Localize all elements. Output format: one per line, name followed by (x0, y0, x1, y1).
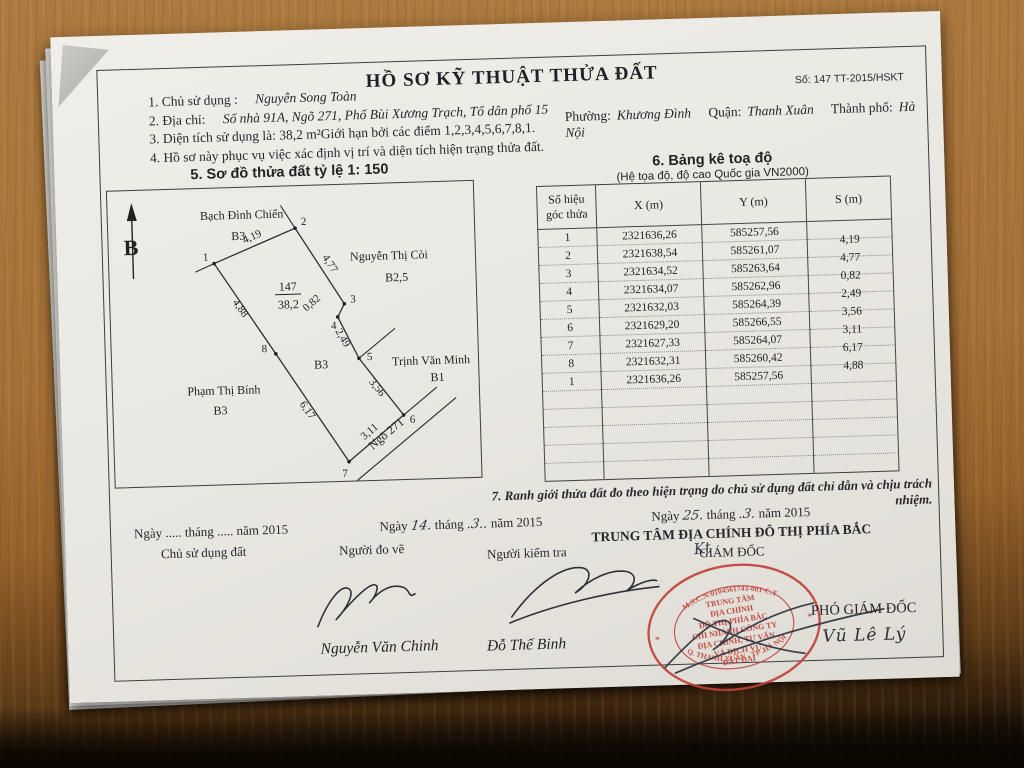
edge-length: 6,17 (297, 399, 318, 422)
owner-role-label: Chủ sử dụng đất (123, 543, 283, 564)
surveyor-role-label: Người đo vẽ (301, 540, 441, 560)
coordinates-table: Số hiệugóc thửa X (m) Y (m) S (m) 123216… (536, 175, 900, 481)
neighbor-grade: B2,5 (385, 270, 408, 285)
parcel-grade: B3 (314, 357, 328, 371)
neighbor-grade: B3 (213, 403, 227, 417)
north-label: B (123, 235, 139, 260)
point-label: 5 (367, 351, 373, 363)
document-page: HỒ SƠ KỸ THUẬT THỬA ĐẤT Số: 147 TT-2015/… (50, 11, 959, 703)
photo-of-document: { "header": { "title": "HỒ SƠ KỸ THUẬT T… (0, 0, 1024, 768)
surveyor-name: Nguyễn Văn Chinh (304, 637, 454, 659)
point-label: 7 (342, 468, 348, 480)
point-label: 8 (261, 343, 267, 355)
district-value: Thanh Xuân (747, 102, 814, 119)
admin-area-line: Phường:Khương Đình Quận:Thanh Xuân Thành… (565, 98, 928, 141)
point-label: 1 (203, 252, 209, 264)
neighbor-grade: B3 (231, 229, 245, 243)
neighbor-grade: B1 (430, 370, 444, 384)
parcel-sketch: B 1 2 3 4 5 6 7 8 4,19 4,77 0,82 2,49 3,… (106, 180, 483, 489)
document-number: Số: 147 TT-2015/HSKT (795, 71, 904, 86)
edge-length: 4,77 (319, 252, 340, 275)
col-header-s: S (m) (805, 176, 891, 222)
point-label: 6 (410, 414, 416, 426)
document-frame: HỒ SƠ KỸ THUẬT THỬA ĐẤT Số: 147 TT-2015/… (96, 45, 944, 681)
point-label: 3 (350, 293, 356, 305)
neighbor-name: Phạm Thị Bính (187, 382, 261, 398)
parcel-number: 147 (279, 279, 297, 294)
handwritten-month: .3.. (466, 517, 489, 533)
surveyor-date-line: Ngày 14. tháng .3.. năm 2015 (356, 513, 566, 535)
owner-info-block: 1. Chủ sử dụng : Nguyễn Song Toàn 2. Địa… (148, 82, 549, 168)
col-header-corner: Số hiệugóc thửa (536, 185, 596, 230)
col-header-x: X (m) (595, 182, 701, 228)
inspector-name: Đỗ Thế Binh (466, 635, 586, 657)
owner-date-line: Ngày ..... tháng ..... năm 2015 (116, 521, 306, 543)
neighbor-name: Nguyễn Thị Còi (350, 247, 429, 263)
org-name: TRUNG TÂM ĐỊA CHÍNH ĐÔ THỊ PHÍA BẮC (579, 521, 883, 546)
signature-surveyor (310, 574, 424, 635)
handwritten-day: 14. (410, 518, 433, 534)
parcel-area: 38,2 (278, 297, 299, 312)
stamp-star: * (654, 635, 661, 647)
handwritten-month: .3. (738, 507, 757, 523)
edge-length: 4,88 (230, 297, 251, 320)
owner-name: Nguyễn Song Toàn (255, 88, 357, 106)
neighbor-name: Trịnh Văn Minh (392, 352, 470, 368)
edge-length: 2,49 (333, 327, 353, 350)
edge-length: 3,56 (366, 376, 388, 399)
col-header-y: Y (m) (700, 179, 806, 225)
neighbor-name: Bạch Đình Chiến (200, 207, 284, 223)
ward-value: Khương Đình (617, 105, 692, 122)
handwritten-day: 25. (682, 508, 705, 524)
parcel-sketch-svg: B 1 2 3 4 5 6 7 8 4,19 4,77 0,82 2,49 3,… (107, 181, 482, 488)
edge-length: 0,82 (301, 292, 323, 314)
road-edge-line (403, 387, 438, 415)
desk-shadow (0, 708, 1024, 768)
point-label: 2 (301, 216, 307, 228)
